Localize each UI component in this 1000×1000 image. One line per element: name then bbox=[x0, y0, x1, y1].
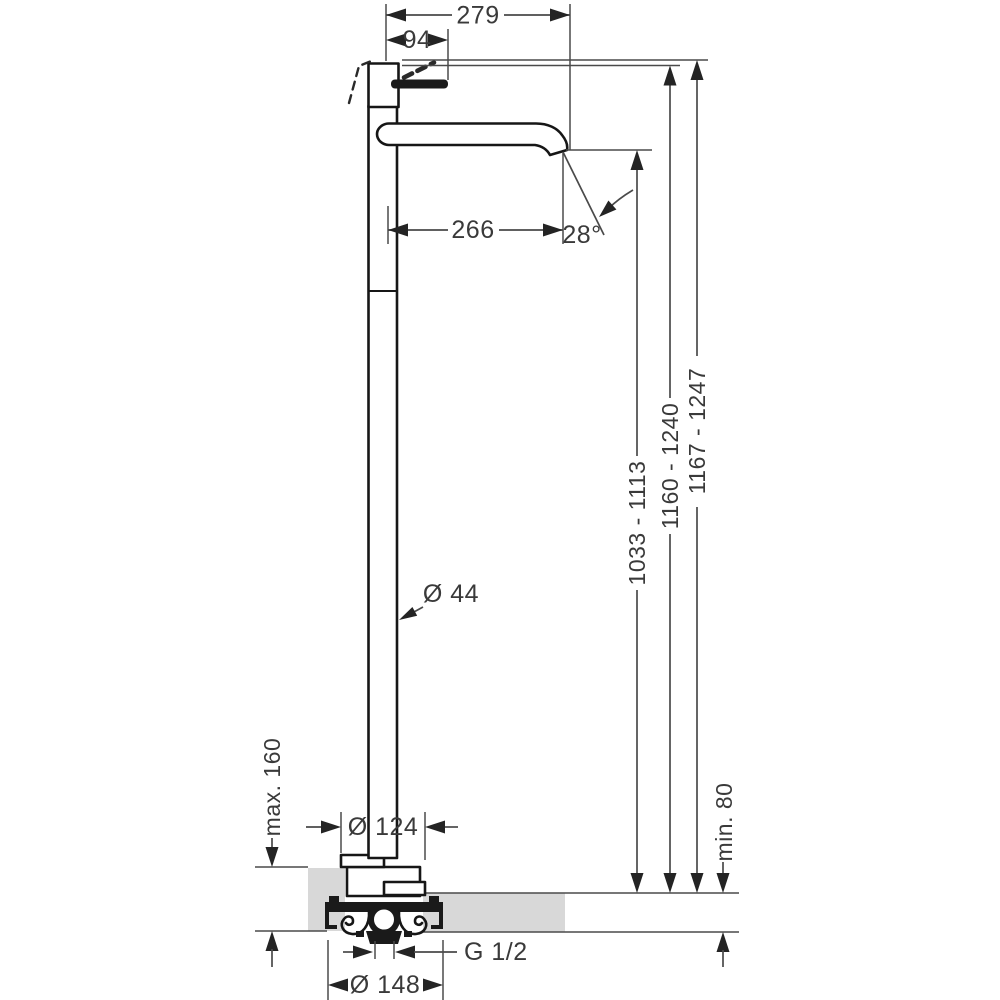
dimension-1167-1247: 1167 - 1247 bbox=[684, 60, 710, 893]
floor-right-fill bbox=[423, 893, 565, 932]
escutcheon-right-half bbox=[384, 882, 425, 895]
dimension-value: 266 bbox=[451, 216, 494, 244]
dimension-arrow bbox=[395, 946, 415, 959]
dimension-arrow bbox=[425, 821, 445, 834]
riser-column bbox=[369, 106, 398, 858]
dimension-dia-44: Ø 44 bbox=[399, 580, 479, 620]
dimension-value: 279 bbox=[456, 2, 499, 30]
dimension-value: Ø 124 bbox=[348, 813, 419, 841]
dimension-value: min. 80 bbox=[711, 783, 737, 862]
dimension-value: 94 bbox=[403, 26, 432, 54]
dimension-arrow bbox=[321, 821, 341, 834]
technical-drawing-canvas: 279 94 266 28° Ø 44 bbox=[0, 0, 1000, 1000]
faucet-body bbox=[341, 62, 567, 897]
mounting-fixture bbox=[325, 896, 443, 944]
handle-lever bbox=[391, 80, 448, 89]
angle-value: 28° bbox=[562, 221, 601, 249]
spout bbox=[377, 124, 567, 156]
fixture-thread-stub bbox=[366, 931, 402, 944]
leader-arrow bbox=[399, 607, 417, 620]
fixture-left-block bbox=[356, 931, 364, 937]
dimension-max-160: max. 160 bbox=[259, 738, 285, 967]
dimension-arrow bbox=[266, 847, 279, 867]
fixture-right-curl bbox=[399, 911, 426, 934]
dimension-arrow bbox=[691, 60, 704, 80]
dimension-arrow bbox=[631, 150, 644, 170]
dimension-value: 1160 - 1240 bbox=[657, 403, 683, 530]
dimension-1033-1113: 1033 - 1113 bbox=[624, 150, 650, 893]
dimension-arrow bbox=[664, 66, 677, 86]
faucet-dimension-drawing: 279 94 266 28° Ø 44 bbox=[0, 0, 1000, 1000]
dimension-value: 1167 - 1247 bbox=[684, 368, 710, 495]
dimension-arrow bbox=[717, 932, 730, 952]
fixture-right-block bbox=[404, 931, 412, 937]
dimension-arrow bbox=[266, 931, 279, 951]
dimension-arrow bbox=[386, 9, 406, 22]
dimension-arrow bbox=[717, 873, 730, 893]
dimension-min-80: min. 80 bbox=[711, 783, 737, 967]
dimension-arrow bbox=[631, 873, 644, 893]
dimension-1160-1240: 1160 - 1240 bbox=[657, 66, 683, 894]
fixture-right-nub bbox=[429, 896, 439, 903]
dimension-266: 266 bbox=[388, 206, 563, 244]
dimension-value: max. 160 bbox=[259, 738, 285, 837]
dimension-arrow bbox=[550, 9, 570, 22]
dimension-value: 1033 - 1113 bbox=[624, 461, 650, 586]
fixture-connection-ring bbox=[371, 907, 397, 933]
dimension-dia-148: Ø 148 bbox=[328, 940, 443, 1000]
fixture-left-nub bbox=[329, 896, 339, 903]
dimension-arrow bbox=[691, 873, 704, 893]
dimension-arrow bbox=[423, 979, 443, 992]
dimension-value: Ø 148 bbox=[350, 971, 421, 999]
dimension-arrow bbox=[543, 224, 563, 237]
dimension-arrow bbox=[664, 873, 677, 893]
dimension-arrow bbox=[353, 946, 373, 959]
dimension-value: Ø 44 bbox=[423, 580, 479, 608]
dimension-value: G 1/2 bbox=[464, 938, 528, 966]
handle-swivel-dashed-outline bbox=[349, 62, 370, 104]
dimension-arrow bbox=[328, 979, 348, 992]
fixture-left-curl bbox=[342, 911, 369, 934]
